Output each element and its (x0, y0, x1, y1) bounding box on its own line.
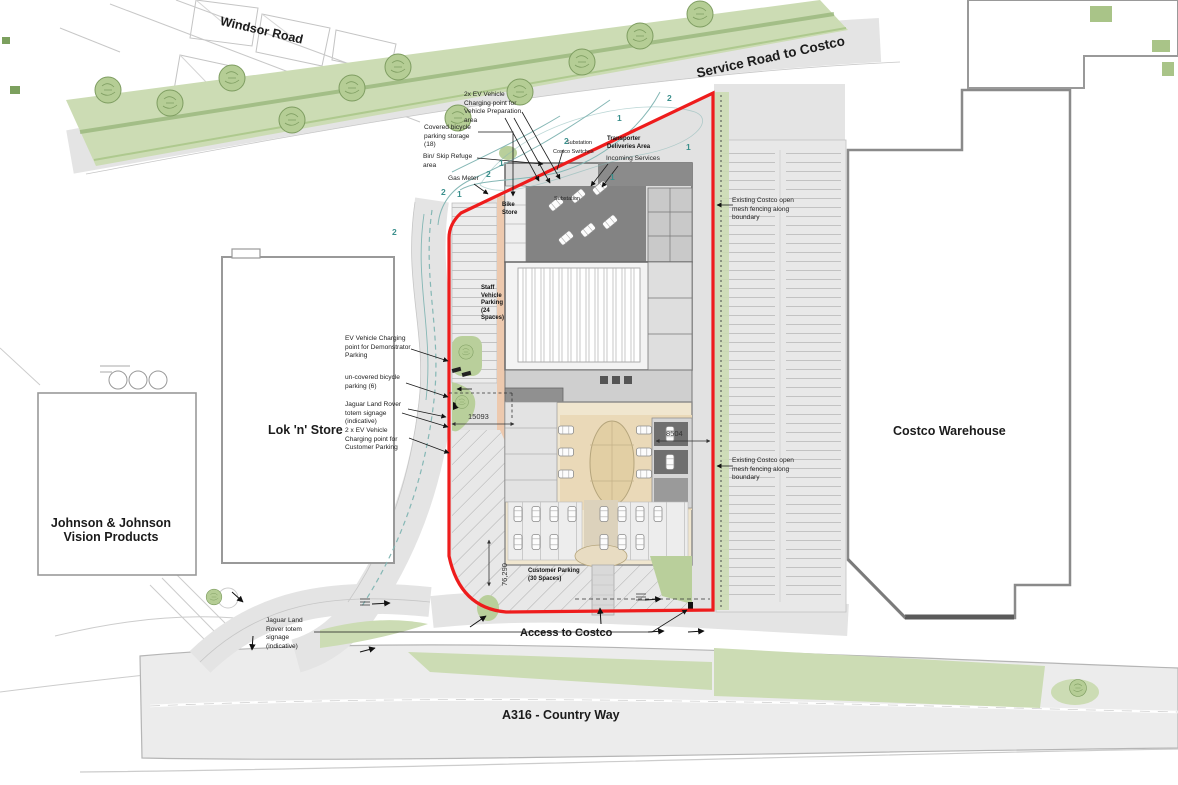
annotation-fence-north: Existing Costco open mesh fencing along … (732, 197, 796, 223)
annotation-ev-prep: 2x EV Vehicle Charging point for Vehicle… (464, 91, 522, 125)
annotation-substation-a: Substation (566, 140, 608, 147)
dimension-east-gap: 8504 (666, 429, 683, 438)
costco-warehouse-label: Costco Warehouse (893, 424, 1006, 438)
annotation-gas-meter: Gas Meter (448, 175, 488, 184)
annotation-bin-skip: Bin/ Skip Refuge area (423, 153, 477, 170)
swept-path-marker: 1 (686, 142, 691, 152)
swept-path-marker: 2 (486, 169, 491, 179)
customer-parking-label: Customer Parking (30 Spaces) (528, 568, 586, 583)
costco-warehouse-building (848, 90, 1070, 618)
dimension-west-depth: 76,290 (500, 563, 509, 586)
swept-path-marker: 2 (441, 187, 446, 197)
annotation-fence-south: Existing Costco open mesh fencing along … (732, 457, 796, 483)
lok-n-store-label: Lok 'n' Store (268, 423, 343, 437)
jnj-label-line2: Vision Products (50, 530, 172, 544)
bike-store-label: Bike Store (502, 202, 528, 217)
jnj-label-line1: Johnson & Johnson (50, 516, 172, 530)
annotation-costco-switches: Costco Switches (553, 149, 615, 156)
jnj-label: Johnson & Johnson Vision Products (50, 516, 172, 544)
top-right-building (968, 0, 1178, 88)
a316-label: A316 - Country Way (502, 708, 620, 722)
staff-parking-label: Staff Vehicle Parking (24 Spaces) (481, 285, 503, 323)
swept-path-marker: 1 (457, 189, 462, 199)
boundary-green-strip (714, 92, 729, 610)
dimension-frontage: 15093 (468, 412, 489, 421)
swept-path-marker: 2 (392, 227, 397, 237)
annotation-incoming-services: Incoming Services (606, 155, 668, 164)
access-road-label: Access to Costco (520, 627, 612, 639)
annotation-ev-demo: EV Vehicle Charging point for Demonstrat… (345, 335, 411, 361)
site-plan-canvas: Windsor Road Service Road to Costco Cost… (0, 0, 1178, 785)
swept-path-marker: 1 (499, 158, 504, 168)
swept-path-marker: 2 (667, 93, 672, 103)
annotation-ev-customer: 2 x EV Vehicle Charging point for Custom… (345, 427, 409, 453)
swept-path-marker: 1 (610, 172, 615, 182)
site-plan-drawing (0, 0, 1178, 785)
swept-path-marker: 2 (564, 136, 569, 146)
annotation-covered-bike: Covered bicycle parking storage (18) (424, 124, 478, 150)
annotation-jlr-totem-south: Jaguar Land Rover totem signage (indicat… (266, 617, 316, 651)
annotation-jlr-totem-west: Jaguar Land Rover totem signage (indicat… (345, 401, 407, 427)
annotation-uncovered-bike: un-covered bicycle parking (6) (345, 374, 403, 391)
swept-path-marker: 1 (617, 113, 622, 123)
annotation-substation-b: Substation (554, 196, 596, 203)
